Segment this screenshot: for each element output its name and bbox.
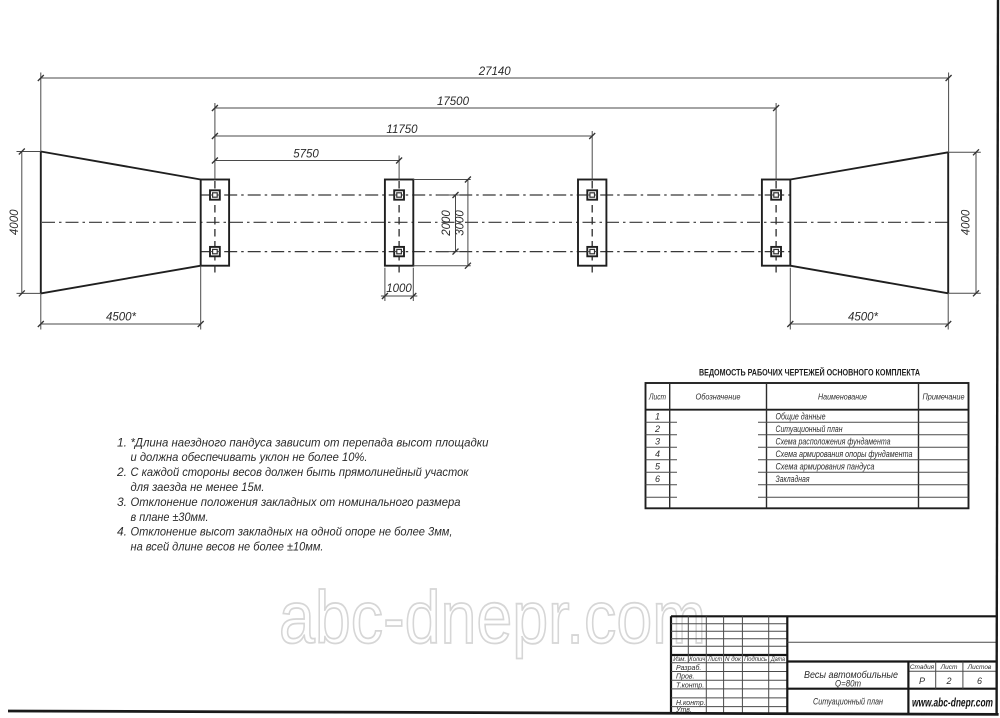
svg-text:5: 5 [655, 462, 661, 472]
svg-text:3.: 3. [117, 495, 127, 509]
svg-text:27140: 27140 [478, 66, 512, 78]
svg-text:Р: Р [919, 676, 925, 686]
svg-text:ВЕДОМОСТЬ РАБОЧИХ ЧЕРТЕЖЕЙ ОСН: ВЕДОМОСТЬ РАБОЧИХ ЧЕРТЕЖЕЙ ОСНОВНОГО КОМ… [699, 367, 920, 379]
svg-text:Листов: Листов [967, 664, 992, 671]
svg-text:Наименование: Наименование [818, 393, 867, 402]
svg-text:Подпись: Подпись [744, 656, 767, 663]
svg-text:3: 3 [655, 437, 660, 447]
svg-text:4000: 4000 [961, 209, 973, 235]
svg-text:4.: 4. [117, 524, 127, 538]
svg-text:5750: 5750 [293, 149, 319, 161]
svg-text:3000: 3000 [455, 210, 467, 236]
svg-text:1000: 1000 [386, 283, 412, 295]
svg-text:2000: 2000 [441, 210, 453, 237]
svg-text:Пров.: Пров. [676, 674, 695, 681]
svg-text:2.: 2. [116, 465, 127, 479]
svg-text:4: 4 [655, 449, 660, 459]
svg-text:6: 6 [655, 474, 660, 484]
svg-text:Ситуационный план: Ситуационный план [776, 424, 843, 434]
svg-text:для заезда не менее 15м.: для заезда не менее 15м. [131, 480, 265, 494]
svg-text:Лист: Лист [707, 656, 722, 663]
svg-text:Ситуационный план: Ситуационный план [813, 696, 883, 706]
svg-text:N док: N док [725, 656, 742, 663]
svg-text:abc-dnepr.com: abc-dnepr.com [279, 576, 706, 660]
svg-text:Примечание: Примечание [923, 393, 965, 402]
svg-text:1: 1 [655, 412, 660, 422]
svg-text:4500*: 4500* [106, 312, 137, 324]
svg-text:на всей длине весов не более ±: на всей длине весов не более ±10мм. [131, 540, 324, 554]
svg-text:Обозначение: Обозначение [696, 393, 741, 402]
svg-text:www.abc-dnepr.com: www.abc-dnepr.com [912, 698, 993, 710]
svg-text:Т.контр.: Т.контр. [676, 682, 704, 689]
svg-text:Схема армирования опоры фундам: Схема армирования опоры фундамента [776, 449, 913, 459]
svg-text:и должна обеспечивать уклон не: и должна обеспечивать уклон не более 10%… [131, 450, 368, 464]
svg-text:Общие данные: Общие данные [776, 412, 826, 422]
svg-text:2: 2 [654, 424, 660, 434]
svg-text:11750: 11750 [386, 124, 418, 136]
svg-text:Схема армирования пандуса: Схема армирования пандуса [776, 462, 875, 472]
svg-text:4500*: 4500* [848, 312, 879, 324]
svg-text:Изм.: Изм. [673, 656, 686, 663]
svg-text:в плане ±30мм.: в плане ±30мм. [131, 510, 209, 524]
svg-text:С каждой стороны весов должен: С каждой стороны весов должен быть прямо… [131, 465, 470, 479]
svg-text:Отклонение высот закладных на: Отклонение высот закладных на одной опор… [131, 524, 453, 538]
svg-text:Колич: Колич [689, 656, 706, 663]
svg-text:Разраб.: Разраб. [676, 664, 701, 672]
svg-text:2: 2 [945, 676, 951, 686]
svg-text:1.: 1. [117, 436, 127, 450]
svg-text:17500: 17500 [437, 96, 470, 108]
svg-text:Лист: Лист [648, 393, 666, 402]
svg-text:*Длина наездного пандуса завис: *Длина наездного пандуса зависит от пере… [131, 436, 489, 450]
svg-text:Стадия: Стадия [910, 663, 935, 671]
svg-text:6: 6 [977, 676, 982, 686]
svg-text:Закладная: Закладная [776, 474, 810, 484]
svg-text:Отклонение положения закладных: Отклонение положения закладных от номина… [131, 495, 461, 509]
svg-text:4000: 4000 [9, 209, 21, 235]
svg-text:Н.контр.: Н.контр. [676, 700, 706, 707]
svg-text:Q=80т: Q=80т [835, 678, 861, 689]
svg-text:Лист: Лист [940, 664, 958, 671]
svg-text:Схема расположения фундамента: Схема расположения фундамента [776, 437, 891, 447]
svg-text:Дата: Дата [770, 656, 785, 663]
